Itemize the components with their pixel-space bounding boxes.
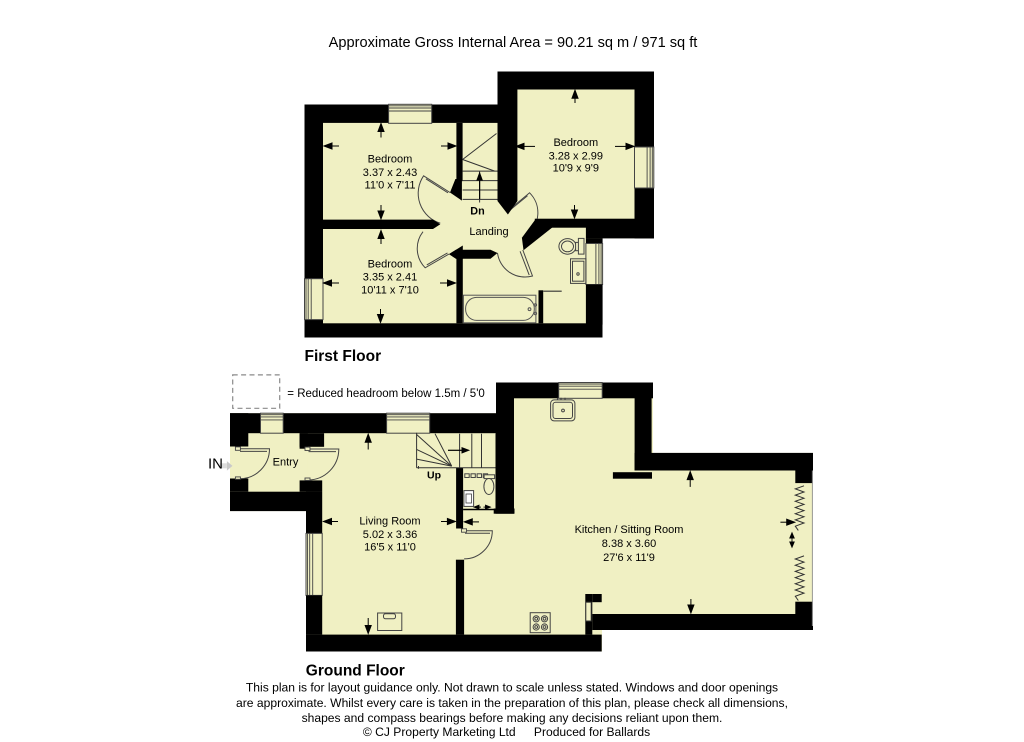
svg-text:3.35 x 2.41: 3.35 x 2.41 — [363, 272, 417, 284]
svg-text:shapes and compass bearings be: shapes and compass bearings before makin… — [302, 711, 723, 725]
svg-text:IN: IN — [208, 456, 223, 473]
svg-text:Bedroom: Bedroom — [368, 259, 413, 271]
svg-text:© CJ Property Marketing Ltd: © CJ Property Marketing Ltd — [363, 725, 516, 739]
svg-text:Entry: Entry — [273, 457, 299, 469]
svg-text:3.28 x 2.99: 3.28 x 2.99 — [549, 151, 603, 163]
svg-text:Living Room: Living Room — [359, 515, 420, 527]
svg-text:3.37 x 2.43: 3.37 x 2.43 — [363, 167, 417, 179]
svg-text:First Floor: First Floor — [305, 348, 382, 365]
svg-text:Dn: Dn — [470, 206, 484, 218]
svg-text:Approximate Gross Internal Are: Approximate Gross Internal Area = 90.21 … — [329, 35, 698, 51]
svg-text:16'5 x 11'0: 16'5 x 11'0 — [364, 541, 416, 553]
svg-text:10'11 x 7'10: 10'11 x 7'10 — [361, 284, 419, 296]
svg-text:Kitchen / Sitting Room: Kitchen / Sitting Room — [575, 524, 684, 536]
svg-text:5.02 x 3.36: 5.02 x 3.36 — [363, 529, 417, 541]
svg-text:Bedroom: Bedroom — [553, 137, 598, 149]
svg-text:11'0 x 7'11: 11'0 x 7'11 — [365, 180, 416, 192]
svg-text:Produced for Ballards: Produced for Ballards — [534, 725, 650, 739]
svg-text:Up: Up — [427, 470, 441, 482]
svg-text:= Reduced headroom below 1.5m: = Reduced headroom below 1.5m / 5'0 — [287, 388, 485, 400]
svg-text:27'6 x 11'9: 27'6 x 11'9 — [603, 552, 655, 564]
svg-text:Ground Floor: Ground Floor — [306, 663, 405, 680]
svg-text:Bedroom: Bedroom — [368, 154, 413, 166]
svg-text:are approximate. Whilst every: are approximate. Whilst every care is ta… — [236, 696, 788, 710]
svg-text:This plan is for layout guidan: This plan is for layout guidance only. N… — [246, 681, 778, 695]
svg-text:Landing: Landing — [469, 226, 508, 238]
svg-text:8.38 x 3.60: 8.38 x 3.60 — [602, 538, 656, 550]
svg-text:10'9 x 9'9: 10'9 x 9'9 — [553, 163, 599, 175]
